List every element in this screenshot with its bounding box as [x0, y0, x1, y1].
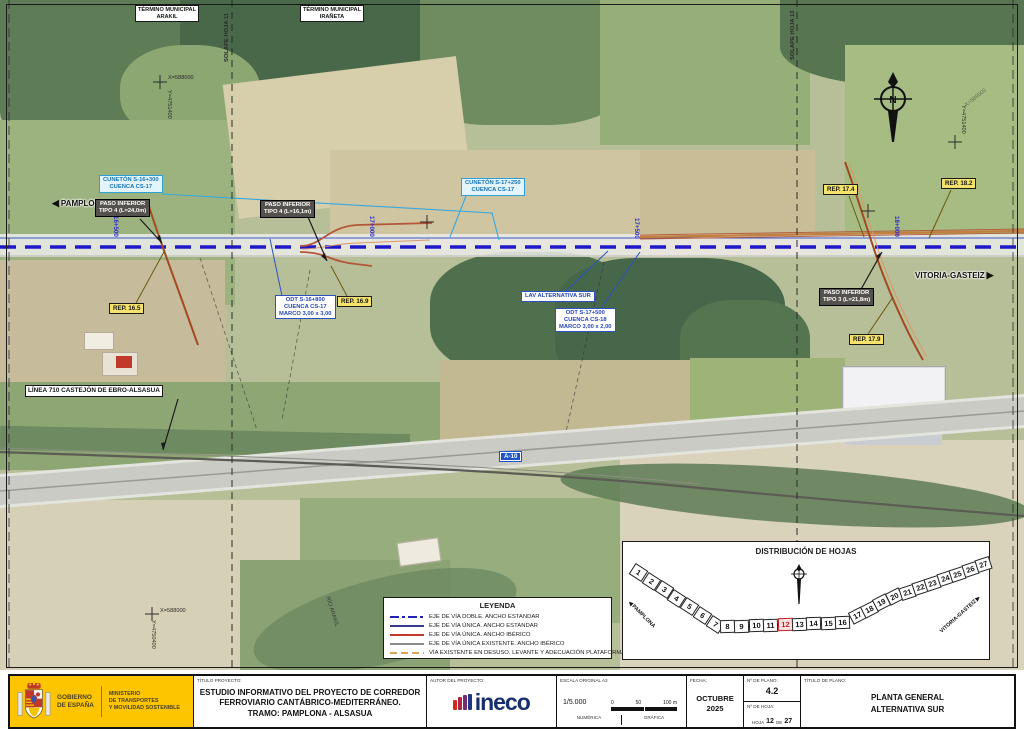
municipal-label-arakil: TÉRMINO MUNICIPAL ARAKIL [135, 5, 199, 22]
hoja-de: DE [776, 720, 782, 725]
legend-entry-label: EJE DE VÍA ÚNICA. ANCHO IBÉRICO [429, 632, 530, 638]
arrow-left-icon: ◀ [52, 198, 59, 209]
legend-title: LEYENDA [390, 601, 605, 610]
date-value: OCTUBRE 2025 [696, 694, 734, 714]
cuneton-s17-label: CUNETÓN S-17+250 CUENCA CS-17 [461, 178, 525, 196]
plan-number-value: 4.2 [766, 686, 779, 696]
north-arrow-icon: N [874, 72, 912, 142]
linea-710-label: LÍNEA 710 CASTEJÓN DE EBRO-ALSASUA [25, 385, 163, 397]
distribution-sheet-tile: 16 [835, 616, 850, 630]
odt-s16-800-label: ODT S-16+800 CUENCA CS-17 MARCO 3,00 x 3… [275, 295, 336, 319]
distribution-sheet-tile: 27 [974, 556, 992, 573]
date-label: FECHA: [690, 678, 707, 683]
rep-leaders [136, 190, 951, 334]
legend-entry-label: EJE DE VÍA DOBLE. ANCHO ESTANDAR [429, 614, 540, 620]
rep-16-9-label: REP. 16.9 [337, 296, 372, 307]
overlap-label-right: SOLAPE HOJA 13 [790, 11, 796, 60]
coord-y-left-top: Y=4751400 [166, 90, 172, 119]
distribution-sheet-tile: 12 [777, 618, 792, 632]
scale-label: ESCALA ORIGINAL A3 [560, 678, 608, 683]
coord-x-bottom: X=588000 [160, 608, 186, 614]
overlap-label-left: SOLAPE HOJA 11 [224, 13, 230, 62]
date-cell: FECHA: OCTUBRE 2025 [687, 676, 744, 727]
km-post-18-000: 18+000 [893, 216, 900, 237]
municipal-label-iraneta: TÉRMINO MUNICIPAL IRAÑETA [300, 5, 364, 22]
legend-entry: EJE DE VÍA DOBLE. ANCHO ESTANDAR [390, 612, 605, 621]
coord-y-right: Y=4751400 [960, 105, 966, 134]
numerica-label: NUMÉRICA [557, 715, 621, 725]
scale-tick: 50 [636, 700, 642, 706]
plan-title-label: TÍTULO DE PLANO: [804, 678, 846, 683]
distribution-sheet-tile: 15 [821, 616, 836, 630]
title-block: GOBIERNO DE ESPAÑA MINISTERIO DE TRANSPO… [8, 674, 1016, 729]
paso-inferior-tipo4-16-label: PASO INFERIOR TIPO 4 (L=16,1m) [260, 200, 315, 218]
legend-line-existing-iberico [390, 643, 424, 645]
plan-title-cell: TÍTULO DE PLANO: PLANTA GENERAL ALTERNAT… [801, 676, 1014, 727]
project-title: ESTUDIO INFORMATIVO DEL PROYECTO DE CORR… [200, 688, 420, 719]
legend-entry: EJE DE VÍA ÚNICA. ANCHO ESTANDAR [390, 621, 605, 630]
sheet-distribution-title: DISTRIBUCIÓN DE HOJAS [623, 547, 989, 556]
plan-title: PLANTA GENERAL ALTERNATIVA SUR [871, 692, 944, 714]
km-post-17-500: 17+500 [633, 218, 640, 239]
legend-line-double-standard [390, 616, 424, 618]
sheet-current: 12 [766, 718, 774, 725]
ineco-logo-text: ineco [475, 691, 530, 714]
km-post-17-000: 17+000 [368, 216, 375, 237]
highway-a10 [0, 394, 1024, 508]
coord-x-top: X=588000 [168, 75, 194, 81]
scale-tick: 0 [611, 700, 614, 706]
distribution-sheet-tile: 14 [806, 617, 821, 631]
sheet-total: 27 [784, 718, 792, 725]
legend-line-single-iberico [390, 634, 424, 636]
legend-entry-label: EJE DE VÍA ÚNICA. ANCHO ESTANDAR [429, 623, 538, 629]
hoja-prefix: HOJA [752, 720, 764, 725]
a10-road-sign: A-10 [500, 452, 521, 461]
sheet-distribution-box: DISTRIBUCIÓN DE HOJAS 123456789101112131… [622, 541, 990, 660]
government-logo-cell: GOBIERNO DE ESPAÑA MINISTERIO DE TRANSPO… [10, 676, 194, 727]
ministerio-text: MINISTERIO DE TRANSPORTES Y MOVILIDAD SO… [109, 691, 180, 712]
rep-16-5-label: REP. 16.5 [109, 303, 144, 314]
numeric-scale-value: 1/5.000 [563, 699, 586, 706]
rep-17-9-label: REP. 17.9 [849, 334, 884, 345]
legend-entry-label: VÍA EXISTENTE EN DESUSO. LEVANTE Y ADECU… [429, 650, 625, 656]
author-label: AUTOR DEL PROYECTO: [430, 678, 484, 683]
plan-number-cell: Nº DE PLANO: 4.2 Nº DE HOJA: HOJA 12 DE … [744, 676, 801, 727]
gobierno-text: GOBIERNO DE ESPAÑA [57, 694, 94, 710]
author-cell: AUTOR DEL PROYECTO: ineco [427, 676, 557, 727]
plan-sheet: N TÉRMINO MUNICIPAL ARAKIL TÉRMINO MUNIC… [0, 0, 1024, 731]
distribution-sheet-tile: 11 [763, 618, 778, 632]
scale-bar-line [611, 707, 677, 711]
legend-line-single-standard [390, 625, 424, 627]
paso-inferior-tipo3-label: PASO INFERIOR TIPO 3 (L=21,8m) [819, 288, 874, 306]
scale-cell: ESCALA ORIGINAL A3 1/5.000 0 50 100 m NU… [557, 676, 687, 727]
sheet-number-label: Nº DE HOJA: [747, 704, 774, 709]
coord-y-left-bottom: Y=4750400 [150, 620, 156, 649]
sheet-number-bottom: Nº DE HOJA: HOJA 12 DE 27 [744, 702, 800, 727]
grafica-label: GRÁFICA [622, 715, 686, 725]
distribution-vitoria: VITORIA-GASTEIZ▶ [939, 595, 982, 634]
project-title-cell: TÍTULO PROYECTO: ESTUDIO INFORMATIVO DEL… [194, 676, 427, 727]
spain-coat-of-arms-icon [16, 681, 52, 723]
map-area: N TÉRMINO MUNICIPAL ARAKIL TÉRMINO MUNIC… [0, 0, 1024, 670]
compass-icon [791, 564, 807, 606]
svg-text:N: N [889, 95, 896, 106]
distribution-sheet-tile: 10 [749, 619, 764, 633]
legend-entry: EJE DE VÍA ÚNICA EXISTENTE. ANCHO IBÉRIC… [390, 639, 605, 648]
divider [101, 686, 102, 717]
legend-line-disused [390, 652, 424, 654]
project-title-label: TÍTULO PROYECTO: [197, 678, 242, 683]
ineco-logo-icon [453, 694, 472, 710]
rep-17-4-label: REP. 17.4 [823, 184, 858, 195]
plan-number-label: Nº DE PLANO: [747, 678, 778, 683]
paso-inferior-tipo4-24-label: PASO INFERIOR TIPO 4 (L=24,0m) [95, 199, 150, 217]
distribution-pamplona: ◀PAMPLONA [627, 600, 656, 629]
grid-crosses [145, 75, 962, 621]
km-post-16-500: 16+500 [112, 216, 119, 237]
plan-number-top: Nº DE PLANO: 4.2 [744, 676, 800, 702]
legend-box: LEYENDA EJE DE VÍA DOBLE. ANCHO ESTANDAR… [383, 597, 612, 659]
odt-s17-500-label: ODT S-17+500 CUENCA CS-18 MARCO 3,00 x 2… [555, 308, 616, 332]
lav-alternativa-sur-label: LAV ALTERNATIVA SUR [521, 291, 595, 302]
legend-entry: EJE DE VÍA ÚNICA. ANCHO IBÉRICO [390, 630, 605, 639]
rep-18-2-label: REP. 18.2 [941, 178, 976, 189]
scale-tick: 100 m [663, 700, 677, 706]
cuneton-s16-label: CUNETÓN S-16+300 CUENCA CS-17 [99, 175, 163, 193]
direction-vitoria: VITORIA-GASTEIZ ▶ [915, 270, 994, 281]
legend-entry: VÍA EXISTENTE EN DESUSO. LEVANTE Y ADECU… [390, 648, 605, 657]
arrow-right-icon: ▶ [987, 270, 994, 281]
distribution-sheet-tile: 9 [734, 619, 749, 633]
legend-entry-label: EJE DE VÍA ÚNICA EXISTENTE. ANCHO IBÉRIC… [429, 641, 565, 647]
graphic-scale-bar: 0 50 100 m [611, 700, 677, 711]
